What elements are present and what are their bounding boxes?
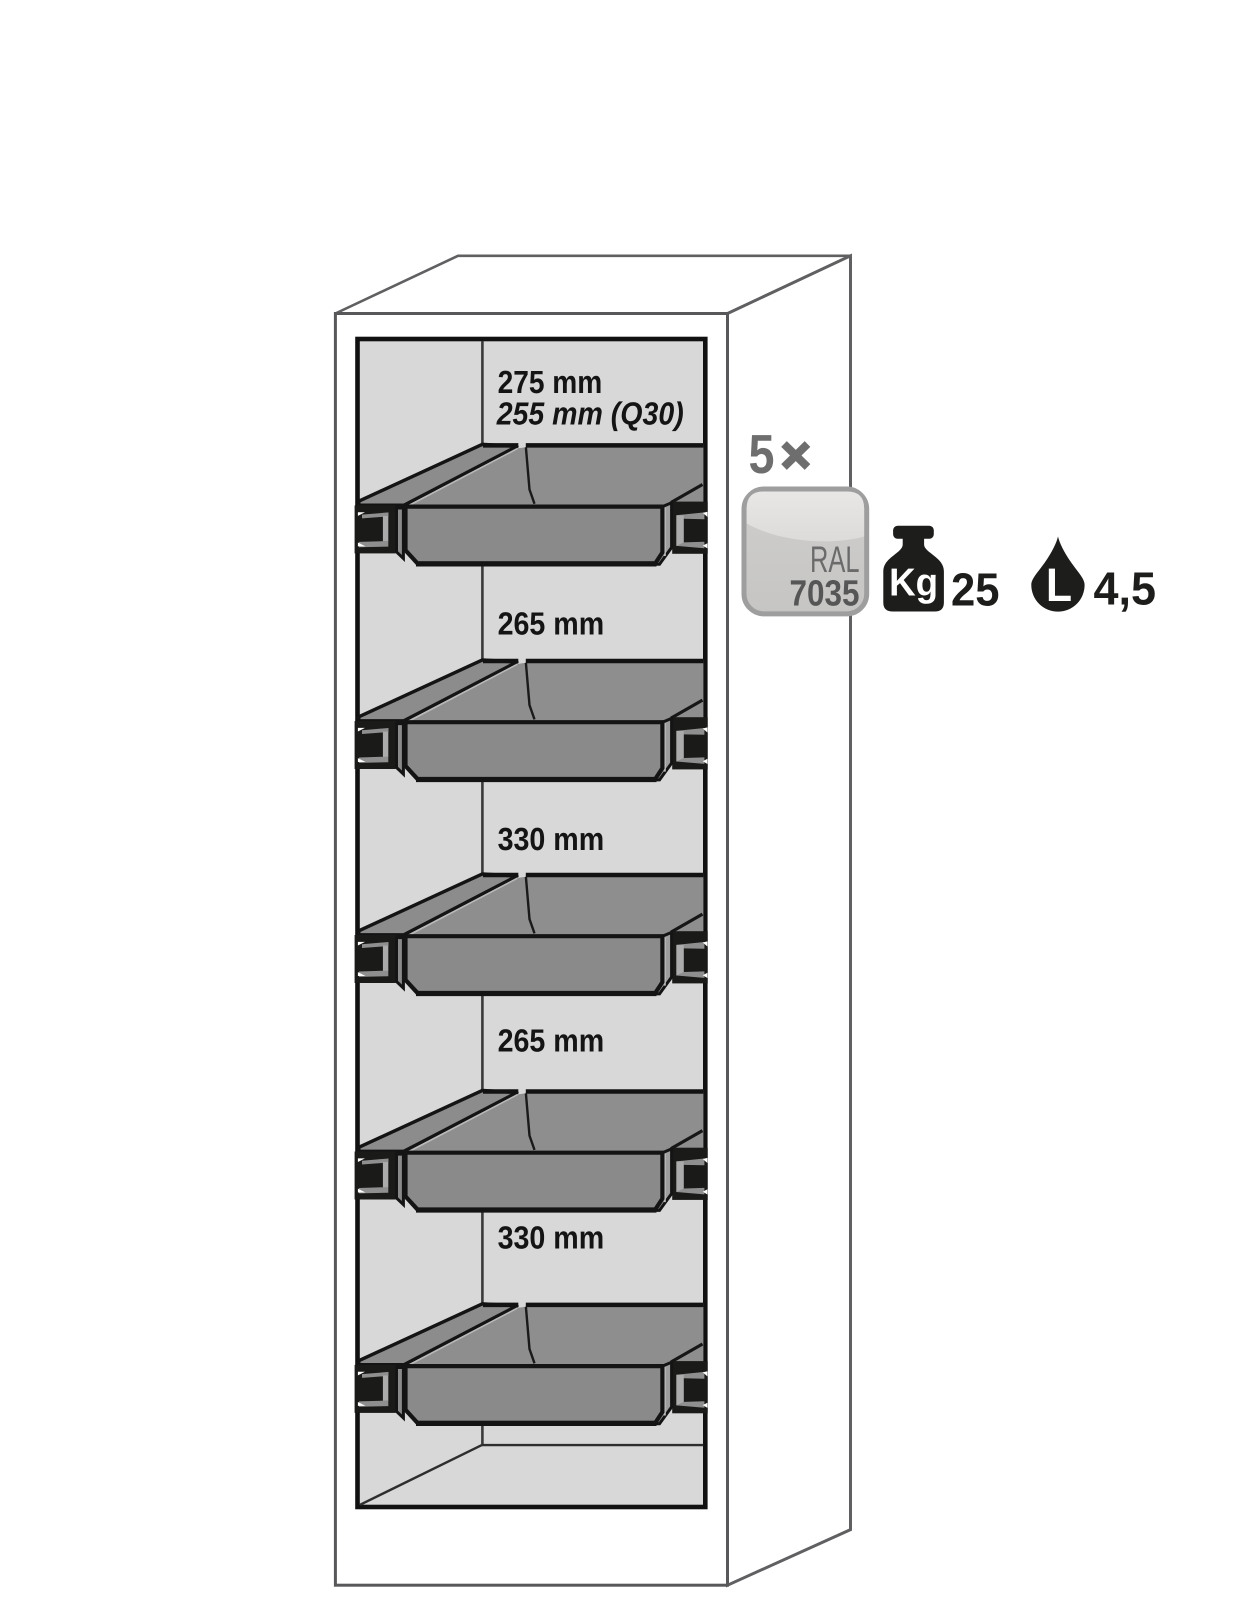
svg-text:7035: 7035 [790,572,860,613]
svg-text:265 mm: 265 mm [498,1023,605,1059]
svg-text:330 mm: 330 mm [498,821,605,857]
svg-text:4,5: 4,5 [1094,563,1157,615]
svg-text:5: 5 [749,423,775,485]
svg-text:255 mm (Q30): 255 mm (Q30) [496,396,684,432]
svg-text:L: L [1046,558,1072,611]
svg-text:25: 25 [951,563,1000,615]
svg-text:Kg: Kg [889,562,938,605]
svg-text:330 mm: 330 mm [498,1220,605,1256]
svg-text:265 mm: 265 mm [498,606,605,642]
